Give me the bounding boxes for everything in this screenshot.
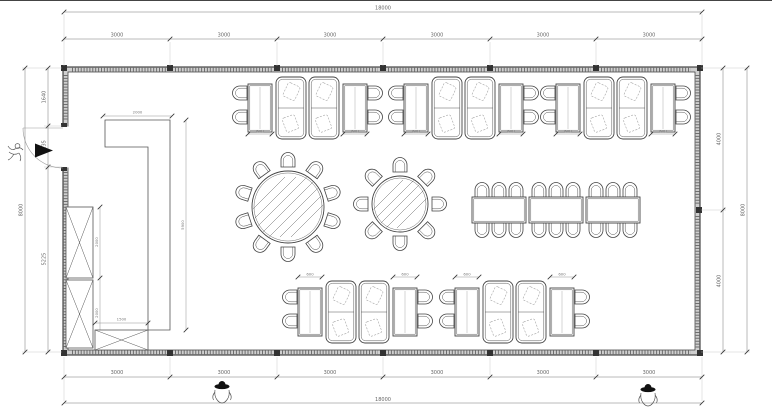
svg-text:5225: 5225 — [42, 253, 48, 266]
floor-plan-canvas: 600 — [0, 0, 772, 414]
banquet-table — [472, 183, 640, 238]
dim-top-total: 18000 — [375, 6, 391, 12]
scale-figure-left-icon — [213, 381, 231, 403]
svg-text:3000: 3000 — [537, 370, 550, 376]
entry-person-icon — [8, 144, 23, 161]
svg-text:3000: 3000 — [643, 33, 656, 39]
svg-text:3000: 3000 — [111, 33, 124, 39]
svg-text:3000: 3000 — [324, 370, 337, 376]
svg-text:3000: 3000 — [431, 370, 444, 376]
svg-text:4000: 4000 — [717, 133, 723, 146]
dim-right-total: 8000 — [741, 204, 747, 217]
svg-text:1640: 1640 — [42, 91, 48, 104]
door-opening — [62, 127, 71, 168]
dimension-right: 4000 4000 8000 — [701, 66, 750, 355]
image-top-border — [0, 0, 772, 1]
dimension-left: 8000 1640 1135 5225 — [19, 66, 63, 355]
svg-text:2000: 2000 — [94, 308, 99, 318]
svg-text:3000: 3000 — [324, 33, 337, 39]
floor-plan: 600 — [0, 0, 772, 414]
scale-figure-right-icon — [639, 384, 657, 406]
svg-text:2000: 2000 — [94, 237, 99, 247]
svg-text:3000: 3000 — [218, 370, 231, 376]
svg-text:3000: 3000 — [431, 33, 444, 39]
svg-text:1500: 1500 — [117, 317, 127, 322]
tall-cabinet — [66, 207, 93, 348]
dimension-top: 18000 3000 3000 3000 3000 3000 3000 — [62, 6, 705, 67]
svg-text:3000: 3000 — [643, 370, 656, 376]
round-table-small — [354, 158, 447, 251]
svg-text:3000: 3000 — [537, 33, 550, 39]
svg-text:4000: 4000 — [717, 275, 723, 288]
svg-text:5900: 5900 — [180, 220, 185, 230]
svg-text:3000: 3000 — [111, 370, 124, 376]
dim-bottom-total: 18000 — [375, 397, 391, 403]
svg-text:2000: 2000 — [133, 110, 143, 115]
dim-left-total: 8000 — [19, 204, 25, 217]
dimension-bottom: 3000 3000 3000 3000 3000 3000 18000 — [62, 357, 705, 405]
svg-text:3000: 3000 — [218, 33, 231, 39]
